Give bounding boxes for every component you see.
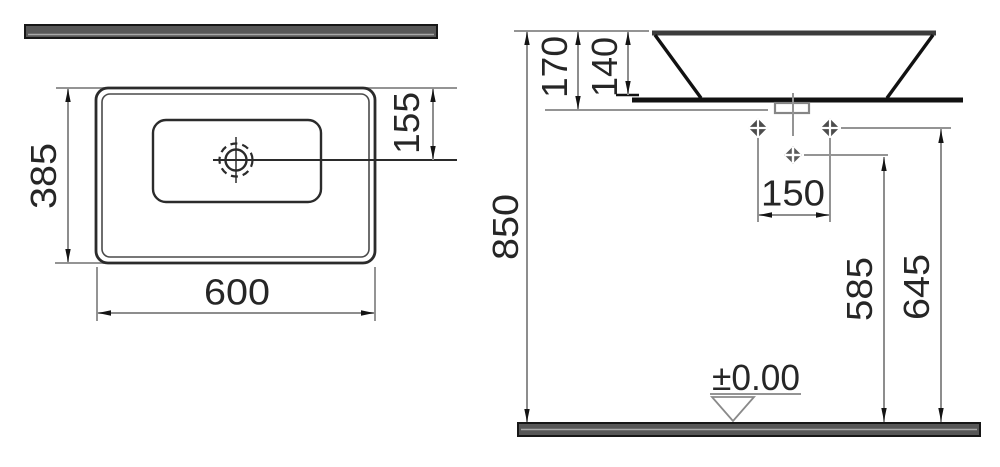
floor-level-datum: ±0.00	[710, 357, 801, 421]
plan-view: 385 600 155	[23, 25, 457, 321]
arrowhead-down	[938, 408, 943, 421]
dimension-850-label: 850	[485, 194, 526, 260]
bowl-right-slant	[887, 35, 933, 98]
arrowhead-down	[65, 249, 70, 262]
arrowhead-up	[625, 32, 630, 45]
dimension-645-label: 645	[896, 254, 937, 320]
wall-strip	[25, 25, 437, 38]
arrowhead-left	[98, 310, 111, 315]
dimension-height-645: 645	[896, 129, 944, 422]
arrowhead-right	[361, 310, 374, 315]
arrowhead-down	[575, 96, 580, 109]
dimension-140-label: 140	[584, 37, 625, 97]
arrowhead-down	[881, 408, 886, 421]
dimension-height-850: 850	[485, 31, 530, 423]
arrowhead-up	[430, 89, 435, 102]
arrowhead-up	[524, 32, 529, 45]
bowl-left-slant	[655, 35, 701, 98]
arrowhead-down	[524, 409, 529, 422]
arrowhead-up	[881, 158, 886, 171]
dimension-width: 600	[97, 272, 375, 316]
technical-drawing-page: 385 600 155	[0, 0, 1000, 467]
arrowhead-up	[65, 89, 70, 102]
dimension-tap-offset: 155	[386, 88, 436, 160]
washbasin-technical-drawing: 385 600 155	[0, 0, 1000, 467]
dimension-depth: 385	[23, 88, 71, 263]
arrowhead-up	[575, 32, 580, 45]
dimension-height-140: 140	[584, 31, 639, 97]
fixing-hole-left-marker	[749, 119, 767, 137]
arrowhead-down	[625, 81, 630, 94]
side-elevation-view: 850 170 140	[485, 31, 980, 436]
dimension-depth-label: 385	[23, 143, 64, 209]
fixing-hole-right-marker	[821, 119, 839, 137]
arrowhead-down	[430, 146, 435, 159]
floor-level-label: ±0.00	[712, 357, 800, 398]
dimension-width-label: 600	[204, 272, 270, 313]
datum-triangle-icon	[712, 397, 754, 421]
dimension-tap-offset-label: 155	[386, 92, 427, 154]
dimension-170-label: 170	[534, 36, 575, 98]
arrowhead-up	[938, 130, 943, 143]
dimension-585-label: 585	[839, 257, 880, 321]
dimension-hole-spacing: 150	[758, 173, 830, 218]
dimension-150-label: 150	[761, 173, 825, 214]
dimension-height-585: 585	[839, 157, 887, 422]
bowl-profile	[632, 33, 963, 136]
overflow-hole-marker	[785, 147, 802, 164]
